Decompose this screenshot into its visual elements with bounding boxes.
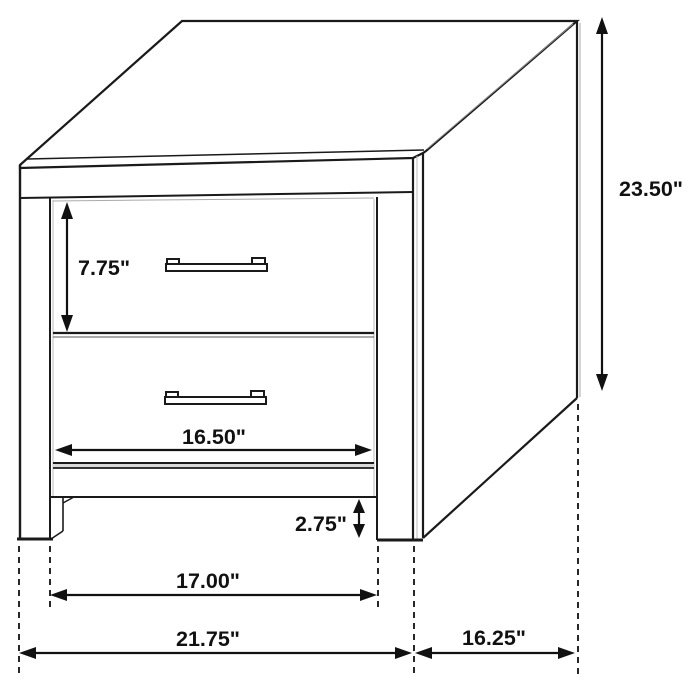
dimension-overall-height: 23.50"	[596, 17, 683, 391]
arrow-down-icon	[596, 374, 608, 391]
dimension-drawer-width: 16.50"	[55, 425, 372, 456]
dimension-label: 17.00"	[176, 569, 240, 593]
arrow-up-icon	[353, 499, 365, 513]
dimension-top-drawer-height: 7.75"	[61, 202, 130, 332]
dimension-base-clearance: 2.75"	[295, 499, 365, 538]
dimension-label: 2.75"	[295, 512, 347, 536]
handle-bar-icon	[166, 264, 267, 271]
arrow-left-icon	[55, 444, 72, 456]
top-surface	[20, 21, 577, 168]
dimension-label: 23.50"	[619, 177, 683, 201]
handle-bar-icon	[165, 397, 266, 404]
arrow-down-icon	[61, 315, 73, 332]
side-bottom-edge	[423, 398, 577, 538]
left-leg-inner-chamfer	[51, 531, 63, 539]
arrow-right-icon	[395, 647, 412, 659]
dimension-inner-leg-span: 17.00"	[50, 569, 377, 601]
top-right-edge-inner	[427, 24, 573, 149]
left-stretcher-notch	[63, 498, 73, 504]
drawer2-handle	[165, 391, 266, 404]
top-rail-bottom-edge	[20, 192, 413, 198]
diagram-canvas: 7.75" 23.50" 16.50" 2.75" 17.00" 21.75"	[0, 0, 700, 700]
arrow-left-icon	[19, 647, 36, 659]
dimension-label: 16.25"	[462, 626, 526, 650]
drawer1-handle	[166, 258, 267, 271]
dimension-label: 21.75"	[176, 627, 240, 651]
dimension-label: 7.75"	[78, 256, 130, 280]
arrow-up-icon	[596, 17, 608, 34]
arrow-left-icon	[50, 589, 67, 601]
arrow-right-icon	[355, 444, 372, 456]
dimension-depth: 16.25"	[415, 626, 575, 659]
nightstand-drawing	[17, 21, 580, 540]
arrow-right-icon	[558, 647, 575, 659]
top-front-edge	[27, 150, 424, 159]
arrow-right-icon	[360, 589, 377, 601]
dimension-overall-width: 21.75"	[19, 627, 412, 659]
nightstand-dimension-diagram: 7.75" 23.50" 16.50" 2.75" 17.00" 21.75"	[0, 0, 700, 700]
arrow-left-icon	[415, 647, 432, 659]
drawer1-top-reveal	[53, 198, 374, 201]
arrow-down-icon	[353, 524, 365, 538]
dimension-label: 16.50"	[182, 425, 246, 449]
arrow-up-icon	[61, 202, 73, 219]
